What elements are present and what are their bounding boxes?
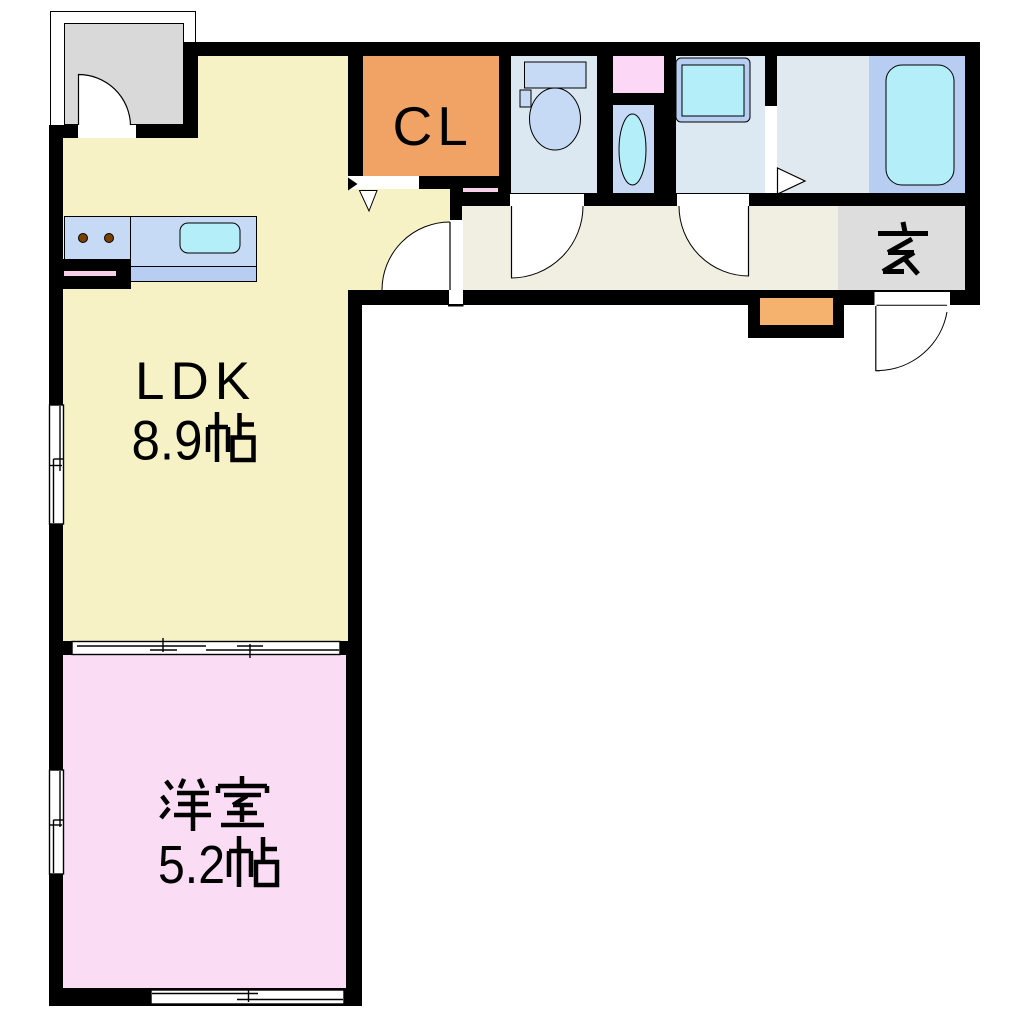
svg-text:5.2: 5.2 [158, 835, 225, 895]
svg-text:CL: CL [393, 95, 473, 157]
svg-text:8.9: 8.9 [132, 409, 203, 472]
svg-text:LDK: LDK [135, 352, 256, 411]
